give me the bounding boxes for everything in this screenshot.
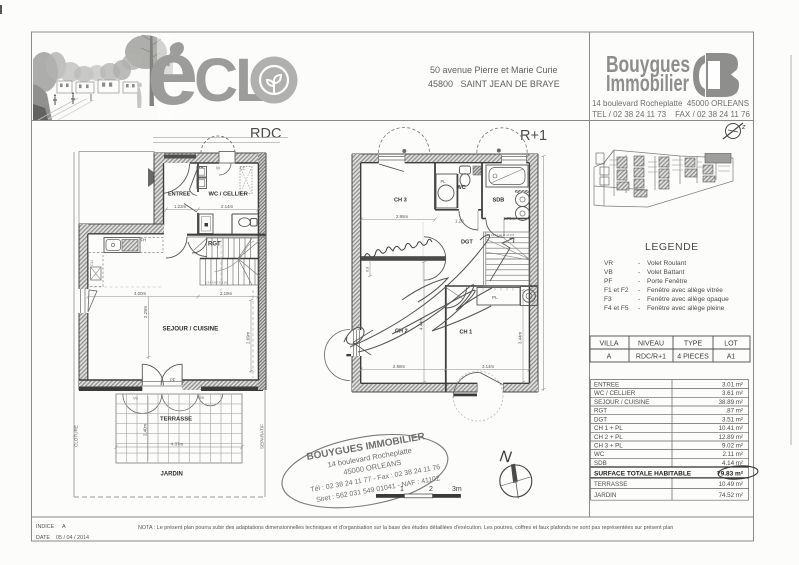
svg-text:.87 m²: .87 m² bbox=[725, 408, 743, 415]
svg-text:SEJOUR / CUISINE: SEJOUR / CUISINE bbox=[594, 399, 649, 406]
svg-text:3m: 3m bbox=[452, 486, 462, 493]
svg-text:RDC/R+1: RDC/R+1 bbox=[636, 354, 666, 361]
svg-text:A: A bbox=[62, 524, 66, 530]
svg-text:WC / CELLIER: WC / CELLIER bbox=[209, 192, 249, 198]
svg-text:e: e bbox=[147, 22, 196, 124]
svg-text:TYPE: TYPE bbox=[684, 341, 703, 348]
svg-text:VB: VB bbox=[604, 269, 613, 276]
svg-text:TEL / 02 38 24 11 73 FAX /: TEL / 02 38 24 11 73 FAX / 02 38 24 11 7… bbox=[592, 109, 750, 119]
svg-text:ENTREE: ENTREE bbox=[168, 192, 191, 198]
svg-text:WC / CELLIER: WC / CELLIER bbox=[594, 390, 636, 397]
svg-text:45800 SAINT JEAN DE BRAYE: 45800 SAINT JEAN DE BRAYE bbox=[428, 79, 560, 89]
svg-text:1.79m: 1.79m bbox=[503, 216, 516, 221]
svg-text:Volet Roulant: Volet Roulant bbox=[647, 260, 686, 267]
svg-text:Immobilier: Immobilier bbox=[606, 70, 689, 96]
svg-text:DGT: DGT bbox=[594, 416, 607, 423]
svg-text:CH 1 + PL: CH 1 + PL bbox=[594, 425, 623, 432]
svg-text:74.52 m²: 74.52 m² bbox=[719, 492, 743, 499]
svg-text:SURFACE TOTALE HABITABLE: SURFACE TOTALE HABITABLE bbox=[594, 471, 692, 478]
svg-text:Fenêtre avec allège opaque: Fenêtre avec allège opaque bbox=[647, 296, 729, 303]
svg-text:A1: A1 bbox=[727, 354, 736, 361]
svg-text:10.41 m²: 10.41 m² bbox=[719, 425, 743, 432]
svg-text:DATE: DATE bbox=[36, 535, 50, 541]
svg-text:14 boulevard Rocheplatte 4500: 14 boulevard Rocheplatte 45000 ORLEANS bbox=[592, 98, 749, 108]
svg-text:z: z bbox=[741, 124, 746, 131]
svg-text:WC: WC bbox=[457, 185, 466, 191]
svg-text:CH 3: CH 3 bbox=[394, 198, 407, 204]
svg-text:3.01 m²: 3.01 m² bbox=[722, 382, 743, 389]
svg-text:2.19m: 2.19m bbox=[220, 291, 233, 296]
svg-text:12.89 m²: 12.89 m² bbox=[719, 434, 743, 441]
svg-text:SEJOUR / CUISINE: SEJOUR / CUISINE bbox=[163, 326, 219, 333]
svg-text:-: - bbox=[638, 287, 640, 294]
svg-text:Fenêtre avec allège pleine: Fenêtre avec allège pleine bbox=[647, 305, 725, 312]
svg-text:RDC: RDC bbox=[250, 126, 281, 142]
svg-text:PF: PF bbox=[604, 278, 612, 285]
svg-text:NIVEAU: NIVEAU bbox=[638, 341, 664, 348]
svg-text:2.95m: 2.95m bbox=[396, 214, 409, 219]
svg-text:DGT: DGT bbox=[461, 240, 473, 246]
svg-text:C: C bbox=[194, 46, 238, 114]
svg-text:2.69m: 2.69m bbox=[246, 331, 251, 344]
svg-text:9.02 m²: 9.02 m² bbox=[722, 443, 743, 450]
svg-text:-: - bbox=[638, 260, 640, 267]
svg-text:2.98m: 2.98m bbox=[393, 364, 406, 369]
svg-text:2.40m: 2.40m bbox=[143, 423, 148, 436]
svg-text:F4 et F5: F4 et F5 bbox=[604, 305, 629, 312]
svg-text:-: - bbox=[638, 305, 640, 312]
svg-text:2.14m: 2.14m bbox=[221, 204, 234, 209]
svg-text:15 14 13 12 11 10 9 8: 15 14 13 12 11 10 9 8 bbox=[487, 233, 514, 237]
svg-text:Porte Fenêtre: Porte Fenêtre bbox=[647, 278, 688, 285]
svg-text:LOT: LOT bbox=[724, 341, 738, 348]
svg-text:ENTREE: ENTREE bbox=[594, 382, 619, 389]
svg-text:INDICE: INDICE bbox=[36, 524, 55, 530]
svg-text:4.00m: 4.00m bbox=[134, 291, 147, 296]
svg-text:CU: CU bbox=[89, 260, 94, 266]
svg-text:2.29m: 2.29m bbox=[143, 305, 148, 318]
svg-text:CLOTURE: CLOTURE bbox=[74, 425, 79, 447]
svg-text:SEPARATIF: SEPARATIF bbox=[260, 424, 265, 449]
svg-text:38.89 m²: 38.89 m² bbox=[719, 399, 743, 406]
svg-text:PF: PF bbox=[170, 378, 176, 383]
svg-text:JARDIN: JARDIN bbox=[161, 472, 183, 478]
svg-text:Volet Battant: Volet Battant bbox=[647, 269, 685, 276]
svg-text:1.22m: 1.22m bbox=[174, 204, 187, 209]
svg-text:RGT: RGT bbox=[208, 242, 221, 248]
svg-text:F3: F3 bbox=[604, 296, 612, 303]
svg-text:NOTA : Le présent plan pourra: NOTA : Le présent plan pourra subir des … bbox=[138, 525, 673, 531]
svg-text:10.49 m²: 10.49 m² bbox=[719, 481, 743, 488]
svg-text:CH 2 + PL: CH 2 + PL bbox=[594, 434, 623, 441]
svg-text:SDB: SDB bbox=[493, 198, 505, 204]
svg-text:PL: PL bbox=[441, 179, 447, 184]
svg-text:F1 et F2: F1 et F2 bbox=[604, 287, 629, 294]
svg-text:05 / 04 / 2014: 05 / 04 / 2014 bbox=[56, 535, 89, 541]
svg-text:2: 2 bbox=[429, 486, 433, 493]
svg-text:1.20: 1.20 bbox=[455, 219, 464, 224]
svg-text:LEGENDE: LEGENDE bbox=[645, 241, 699, 253]
svg-text:-: - bbox=[638, 296, 640, 303]
svg-text:-: - bbox=[638, 278, 640, 285]
svg-text:SDB: SDB bbox=[594, 460, 607, 467]
svg-text:1: 1 bbox=[400, 486, 404, 493]
svg-text:0.9: 0.9 bbox=[366, 267, 370, 272]
svg-text:VR: VR bbox=[604, 260, 613, 267]
svg-text:Fenêtre avec allège vitrée: Fenêtre avec allège vitrée bbox=[647, 287, 723, 294]
svg-text:-: - bbox=[638, 269, 640, 276]
svg-text:TERRASSE: TERRASSE bbox=[160, 417, 192, 423]
svg-text:2.11 m²: 2.11 m² bbox=[722, 451, 743, 458]
svg-text:PL: PL bbox=[492, 295, 498, 300]
svg-text:FH: FH bbox=[141, 238, 147, 243]
svg-text:3.61 m²: 3.61 m² bbox=[722, 390, 743, 397]
svg-text:WC: WC bbox=[594, 451, 605, 458]
svg-text:TERRASSE: TERRASSE bbox=[594, 481, 627, 488]
svg-text:3.44m: 3.44m bbox=[518, 331, 523, 344]
svg-text:3.51 m²: 3.51 m² bbox=[722, 416, 743, 423]
svg-text:CH 3 + PL: CH 3 + PL bbox=[594, 443, 623, 450]
svg-text:2 3 4 5 6 7 8 9 10: 2 3 4 5 6 7 8 9 10 bbox=[205, 281, 227, 285]
svg-text:VB: VB bbox=[133, 397, 139, 401]
svg-text:CH 1: CH 1 bbox=[460, 330, 473, 336]
svg-text:JARDIN: JARDIN bbox=[594, 492, 616, 499]
svg-text:A: A bbox=[607, 354, 612, 361]
svg-text:4.37m: 4.37m bbox=[171, 442, 184, 447]
svg-text:RGT: RGT bbox=[594, 408, 607, 415]
svg-text:VILLA: VILLA bbox=[599, 341, 618, 348]
svg-text:4 PIECES: 4 PIECES bbox=[677, 354, 709, 361]
svg-text:50 avenue Pierre et Marie Curi: 50 avenue Pierre et Marie Curie bbox=[430, 65, 558, 75]
svg-text:3.14m: 3.14m bbox=[482, 364, 495, 369]
